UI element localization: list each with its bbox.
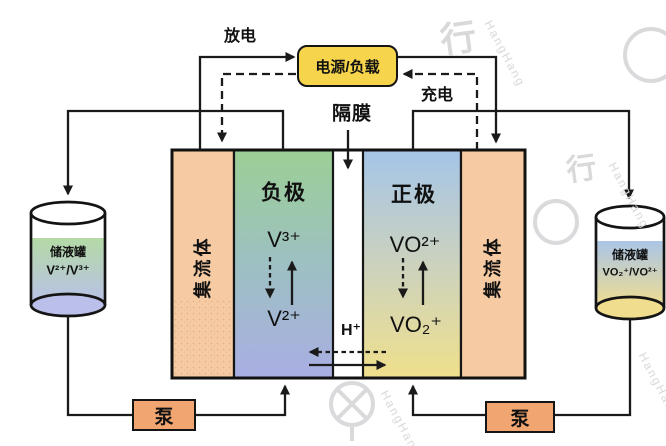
left-tank-top [31,202,105,224]
right-tank-label: 储液罐 [612,249,648,261]
proton-label: H⁺ [341,323,361,339]
watermark-circle-icon [625,29,666,81]
right-collector-label: 集流体 [484,236,502,299]
charge-label: 充电 [421,88,453,104]
left-collector-label: 集流体 [194,236,212,299]
left-tank [31,202,105,316]
right-tank-top [596,206,664,228]
left-tank-bottom [31,294,105,316]
right-tank-species: VO₂⁺/VO²⁺ [602,268,657,279]
negative-reduced-species: V²⁺ [267,308,301,330]
watermark-logo-icon [338,390,366,441]
negative-oxidized-species: V³⁺ [267,229,301,251]
power-load-box: 电源/负载 [297,45,398,87]
dashed-wire-left [222,74,296,141]
watermark-circle-icon [535,201,577,243]
negative-electrode-label: 负极 [261,183,307,204]
membrane-label: 隔膜 [332,105,372,124]
collector-texture [174,298,232,376]
positive-oxidized-species: VO²⁺ [390,234,441,256]
positive-reduced-species: VO₂⁺ [390,314,442,336]
left-pump: 泵 [132,399,196,431]
discharge-label: 放电 [224,29,256,45]
positive-electrode-label: 正极 [391,185,437,206]
left-tank-species: V²⁺/V³⁺ [46,264,89,277]
left-tank-label: 储液罐 [50,246,86,258]
cell-stack [172,150,525,378]
discharge-wire [200,57,294,150]
right-pump: 泵 [485,401,555,433]
right-tank-bottom [596,297,664,319]
right-tank [596,206,664,319]
vanadium-flow-battery-diagram: 放电 电源/负载 充电 隔膜 负极 正极 V³⁺ V²⁺ VO²⁺ VO₂⁺ H… [0,0,666,446]
